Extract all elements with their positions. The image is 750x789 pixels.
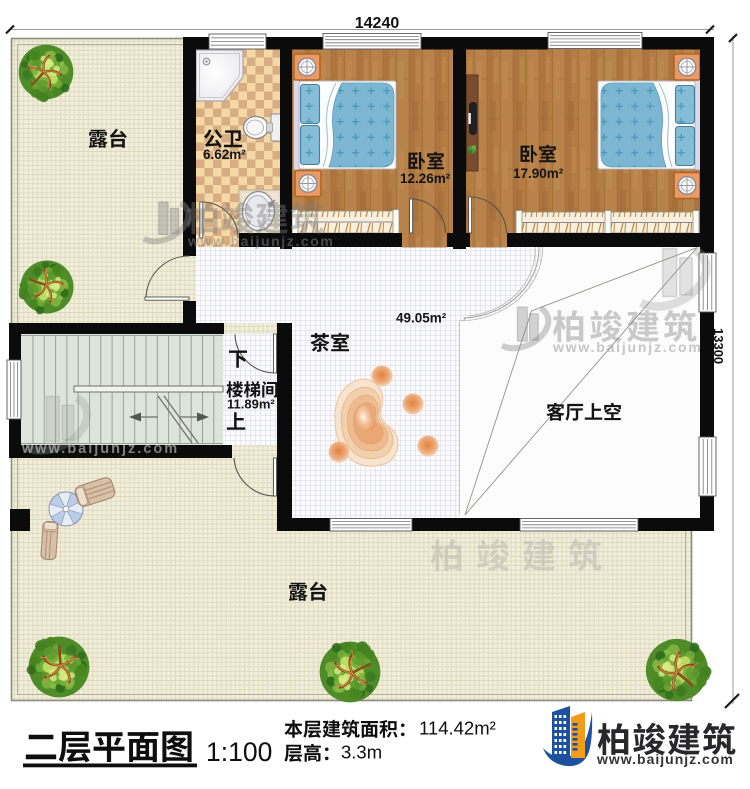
svg-text:17.90m²: 17.90m² <box>513 166 564 181</box>
svg-text:11.89m²: 11.89m² <box>227 397 275 412</box>
svg-text:6.62m²: 6.62m² <box>203 147 246 162</box>
svg-text:www.baijunjz.com: www.baijunjz.com <box>596 751 734 767</box>
svg-text:12.26m²: 12.26m² <box>400 171 451 186</box>
svg-text:www.baijunjz.com: www.baijunjz.com <box>187 233 334 249</box>
svg-text:49.05m²: 49.05m² <box>396 311 447 326</box>
svg-text:114.42m²: 114.42m² <box>419 718 496 739</box>
svg-text:www.baijunjz.com: www.baijunjz.com <box>21 441 179 457</box>
svg-text:1:100: 1:100 <box>206 737 272 767</box>
svg-text:14240: 14240 <box>355 15 400 32</box>
svg-text:3.3m: 3.3m <box>341 742 382 763</box>
svg-text:www.baijunjz.com: www.baijunjz.com <box>552 339 703 355</box>
